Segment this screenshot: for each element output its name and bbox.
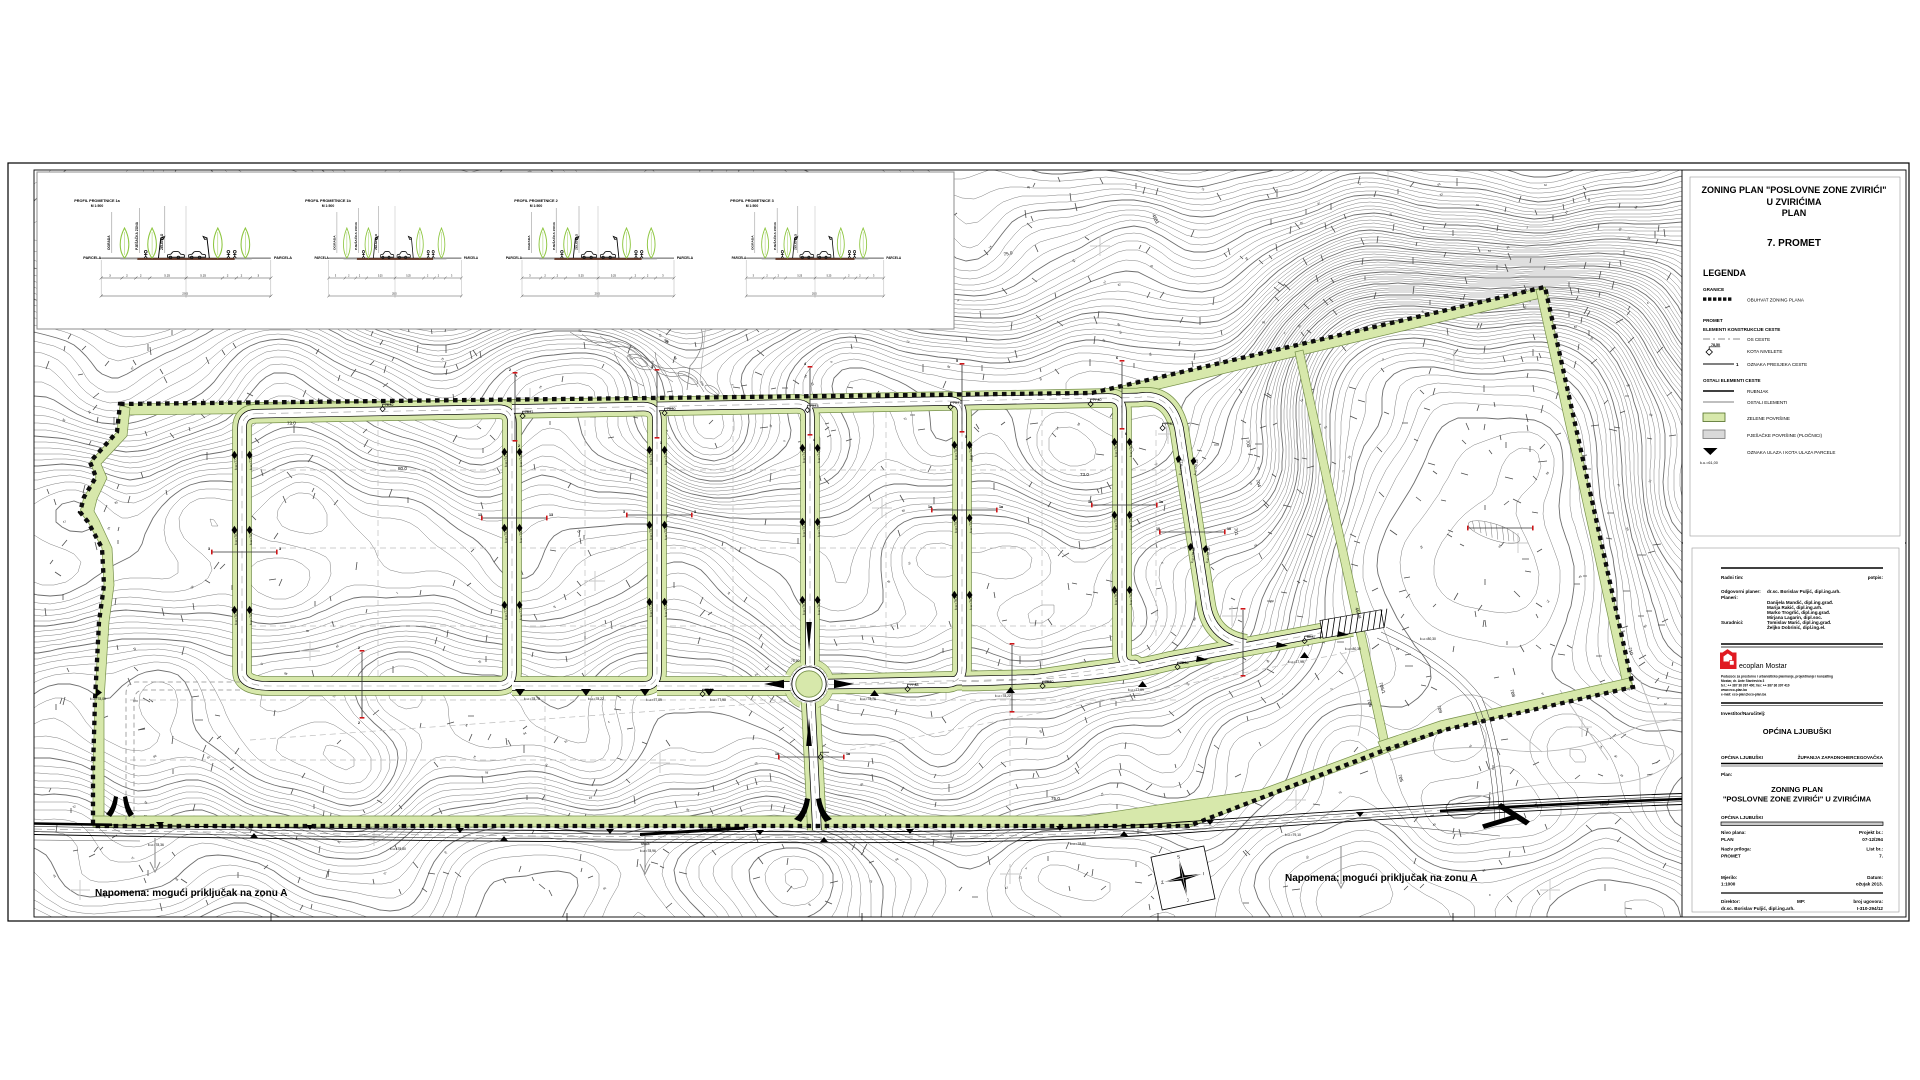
svg-text:I-310-294/12: I-310-294/12 bbox=[1857, 906, 1883, 911]
svg-text:4: 4 bbox=[804, 362, 806, 366]
svg-text:Napomena: mogući priključak na: Napomena: mogući priključak na zonu A bbox=[95, 888, 287, 899]
svg-text:PROMET: PROMET bbox=[1703, 318, 1723, 323]
svg-text:2: 2 bbox=[358, 721, 360, 725]
svg-text:k.u.=77,84: k.u.=77,84 bbox=[664, 601, 668, 617]
svg-text:k.u.=77,89: k.u.=77,89 bbox=[646, 698, 662, 702]
svg-text:3: 3 bbox=[694, 510, 696, 514]
svg-text:M 1:500: M 1:500 bbox=[530, 204, 543, 208]
svg-text:Nivo plana:: Nivo plana: bbox=[1721, 830, 1746, 835]
svg-text:k.u.=78,80: k.u.=78,80 bbox=[1070, 842, 1086, 846]
svg-text:OSTALI ELEMENTI: OSTALI ELEMENTI bbox=[1747, 400, 1787, 405]
svg-text:OZNAKA PRESJEKA CESTE: OZNAKA PRESJEKA CESTE bbox=[1747, 362, 1807, 367]
svg-text:3: 3 bbox=[623, 510, 625, 514]
svg-text:k.u.=78,76: k.u.=78,76 bbox=[860, 697, 876, 701]
svg-text:PROFIL PROMETNICE 3: PROFIL PROMETNICE 3 bbox=[730, 199, 773, 203]
svg-text:Plan:: Plan: bbox=[1721, 772, 1733, 777]
svg-text:5: 5 bbox=[965, 435, 967, 439]
svg-text:k.u.=74,10: k.u.=74,10 bbox=[802, 447, 806, 463]
svg-text:LEGENDA: LEGENDA bbox=[1703, 268, 1747, 278]
svg-text:k.u.=78,43: k.u.=78,43 bbox=[249, 529, 253, 545]
svg-text:Odgovorni planer:: Odgovorni planer: bbox=[1721, 589, 1761, 594]
svg-text:Investitor/Naručitelj:: Investitor/Naručitelj: bbox=[1721, 711, 1766, 716]
svg-text:k.u.=77,90: k.u.=77,90 bbox=[710, 698, 726, 702]
svg-text:k.u.=75,36: k.u.=75,36 bbox=[1114, 514, 1118, 530]
svg-text:77,60: 77,60 bbox=[1165, 422, 1174, 426]
svg-text:6: 6 bbox=[1116, 356, 1118, 360]
svg-text:1: 1 bbox=[1736, 362, 1739, 367]
svg-text:k.u.=76,10: k.u.=76,10 bbox=[954, 594, 958, 610]
svg-text:"POSLOVNE ZONE ZVIRIĆI" U ZVIR: "POSLOVNE ZONE ZVIRIĆI" U ZVIRIĆIMA bbox=[1723, 795, 1872, 804]
svg-text:k.u.=77,95: k.u.=77,95 bbox=[1288, 660, 1304, 664]
svg-text:k.u.=78,20: k.u.=78,20 bbox=[969, 444, 973, 460]
svg-text:dr.sc. Borislav Puljić, dipl.i: dr.sc. Borislav Puljić, dipl.ing.arh. bbox=[1721, 906, 1795, 911]
svg-text:1895: 1895 bbox=[1600, 803, 1608, 807]
svg-text:k.u.=79,10: k.u.=79,10 bbox=[1285, 833, 1301, 837]
svg-text:ZONING PLAN "POSLOVNE ZONE ZVI: ZONING PLAN "POSLOVNE ZONE ZVIRIĆI" bbox=[1701, 184, 1886, 195]
svg-text:k.u.=75,49: k.u.=75,49 bbox=[664, 524, 668, 540]
svg-text:M 1:500: M 1:500 bbox=[91, 204, 104, 208]
svg-text:k.u.=78,96: k.u.=78,96 bbox=[640, 849, 656, 853]
svg-text:78,92: 78,92 bbox=[385, 403, 394, 407]
svg-text:73,00: 73,00 bbox=[667, 407, 676, 411]
svg-text:k.u.=75,49: k.u.=75,49 bbox=[649, 524, 653, 540]
svg-text:k.u.=75,18: k.u.=75,18 bbox=[802, 521, 806, 537]
svg-text:k.u.=78,22: k.u.=78,22 bbox=[588, 697, 604, 701]
svg-text:k.u.=75,36: k.u.=75,36 bbox=[1129, 514, 1133, 530]
svg-text:10: 10 bbox=[1156, 527, 1160, 531]
svg-text:k.u.=77,89: k.u.=77,89 bbox=[1128, 688, 1144, 692]
svg-text:13: 13 bbox=[549, 513, 553, 517]
svg-text:Naziv priloga:: Naziv priloga: bbox=[1721, 847, 1752, 852]
svg-text:GRANICE: GRANICE bbox=[1703, 287, 1724, 292]
svg-text:77,80: 77,80 bbox=[1093, 398, 1102, 402]
svg-text:Poduzeće za prostorno i urbani: Poduzeće za prostorno i urbanističko pla… bbox=[1721, 675, 1833, 679]
svg-text:PROFIL PROMETNICE 2: PROFIL PROMETNICE 2 bbox=[514, 199, 557, 203]
svg-text:k.u.=78,00: k.u.=78,00 bbox=[90, 697, 106, 701]
svg-text:PROFIL PROMETNICE 1a: PROFIL PROMETNICE 1a bbox=[74, 199, 120, 203]
svg-text:ecoplan Mostar: ecoplan Mostar bbox=[1739, 663, 1788, 670]
svg-text:OBUHVAT ZONING PLANA: OBUHVAT ZONING PLANA bbox=[1747, 298, 1805, 303]
svg-text:2: 2 bbox=[358, 646, 360, 650]
svg-text:10: 10 bbox=[1227, 527, 1231, 531]
svg-text:7. PROMET: 7. PROMET bbox=[1767, 238, 1821, 249]
svg-text:k.u.=78,36: k.u.=78,36 bbox=[148, 843, 164, 847]
svg-text:k.u.=74,70: k.u.=74,70 bbox=[519, 451, 523, 467]
svg-text:7.: 7. bbox=[1879, 854, 1883, 859]
svg-text:k.u.=77,84: k.u.=77,84 bbox=[649, 601, 653, 617]
svg-text:PROMET: PROMET bbox=[1721, 854, 1741, 859]
svg-text:ZELENE POVRŠINE: ZELENE POVRŠINE bbox=[1747, 415, 1790, 421]
svg-text:3: 3 bbox=[279, 547, 281, 551]
svg-text:k.u.=76,10: k.u.=76,10 bbox=[1114, 589, 1118, 605]
svg-text:ožujak 2013.: ožujak 2013. bbox=[1856, 882, 1883, 887]
svg-text:k.u.=61,00: k.u.=61,00 bbox=[1700, 461, 1718, 465]
svg-text:Mjerilo:: Mjerilo: bbox=[1721, 875, 1738, 880]
svg-text:k.u.=77,84: k.u.=77,84 bbox=[504, 604, 508, 620]
svg-text:Datum:: Datum: bbox=[1867, 875, 1883, 880]
svg-text:Napomena: mogući priključak na: Napomena: mogući priključak na zonu A bbox=[1285, 873, 1477, 884]
svg-text:13: 13 bbox=[478, 513, 482, 517]
svg-text:4: 4 bbox=[813, 438, 815, 442]
svg-text:k.u.=76,86: k.u.=76,86 bbox=[802, 599, 806, 615]
svg-text:Suradnici:: Suradnici: bbox=[1721, 620, 1744, 625]
svg-text:e-mail: eco-plan@eco-plan.ba: e-mail: eco-plan@eco-plan.ba bbox=[1721, 693, 1766, 697]
svg-text:k.u.=75,02: k.u.=75,02 bbox=[504, 527, 508, 543]
svg-text:k.u.=76,23: k.u.=76,23 bbox=[1114, 441, 1118, 457]
svg-text:List br.:: List br.: bbox=[1866, 847, 1883, 852]
svg-text:k.u.=78,43: k.u.=78,43 bbox=[234, 529, 238, 545]
svg-text:Radni tim:: Radni tim: bbox=[1721, 575, 1744, 580]
svg-text:73,76: 73,76 bbox=[953, 401, 962, 405]
svg-text:k.u.=76,86: k.u.=76,86 bbox=[817, 599, 821, 615]
svg-text:dr.sc. Borislav Puljić, dipl.i: dr.sc. Borislav Puljić, dipl.ing.arh. bbox=[1767, 589, 1841, 594]
svg-text:78,50: 78,50 bbox=[1711, 343, 1720, 347]
svg-text:OPĆINA LJUBUŠKI: OPĆINA LJUBUŠKI bbox=[1721, 753, 1763, 760]
svg-text:75,20: 75,20 bbox=[791, 659, 800, 663]
svg-text:OZNAKA ULAZA I KOTA ULAZA PARC: OZNAKA ULAZA I KOTA ULAZA PARCELE bbox=[1747, 450, 1835, 455]
svg-text:KOTA NIVELETE: KOTA NIVELETE bbox=[1747, 349, 1782, 354]
svg-text:tel.: ++ 387 36 397 400; fax:: tel.: ++ 387 36 397 400; fax: ++ 387 36 … bbox=[1721, 684, 1790, 688]
svg-text:M 1:500: M 1:500 bbox=[322, 204, 335, 208]
svg-text:OSTALI ELEMENTI CESTE: OSTALI ELEMENTI CESTE bbox=[1703, 378, 1761, 383]
svg-text:OPĆINA LJUBUŠKI: OPĆINA LJUBUŠKI bbox=[1763, 727, 1831, 736]
svg-text:k.u.=74,10: k.u.=74,10 bbox=[817, 447, 821, 463]
svg-text:Željko Dobrinić, dipl.ing.el.: Željko Dobrinić, dipl.ing.el. bbox=[1767, 623, 1825, 630]
svg-text:77,88: 77,88 bbox=[910, 683, 919, 687]
svg-text:ZONING PLAN: ZONING PLAN bbox=[1771, 785, 1823, 794]
svg-text:k.u.=78,22: k.u.=78,22 bbox=[995, 694, 1011, 698]
svg-text:ŽUPANIJA ZAPADNOHERCEGOVAČKA: ŽUPANIJA ZAPADNOHERCEGOVAČKA bbox=[1798, 753, 1884, 760]
svg-text:78,20: 78,20 bbox=[1045, 680, 1054, 684]
svg-text:k.u.=78,20: k.u.=78,20 bbox=[954, 444, 958, 460]
svg-text:k.u.=75,18: k.u.=75,18 bbox=[817, 521, 821, 537]
svg-text:k.u.=78,80: k.u.=78,80 bbox=[390, 847, 406, 851]
svg-text:k.u.=80,30: k.u.=80,30 bbox=[1345, 647, 1361, 651]
svg-text:PLAN: PLAN bbox=[1782, 208, 1807, 218]
svg-text:2: 2 bbox=[518, 444, 520, 448]
svg-text:Ljubuški - cesta - Međugorje: Ljubuški - cesta - Međugorje bbox=[700, 826, 745, 830]
svg-text:Planeri:: Planeri: bbox=[1721, 595, 1738, 600]
svg-text:k.u.=78,78: k.u.=78,78 bbox=[524, 697, 540, 701]
svg-text:k.u.=80,30: k.u.=80,30 bbox=[1420, 637, 1436, 641]
svg-text:78,78: 78,78 bbox=[705, 688, 714, 692]
svg-text:78,71: 78,71 bbox=[525, 410, 534, 414]
svg-text:PROFIL PROMETNICE 1b: PROFIL PROMETNICE 1b bbox=[305, 199, 351, 203]
svg-text:ELEMENTI KONSTRUKCIJE CESTE: ELEMENTI KONSTRUKCIJE CESTE bbox=[1703, 327, 1780, 332]
svg-text:PJEŠAČKE POVRŠINE (PLOČNICI): PJEŠAČKE POVRŠINE (PLOČNICI) bbox=[1747, 432, 1823, 438]
svg-text:RUBNJAK: RUBNJAK bbox=[1747, 389, 1769, 394]
svg-text:90: 90 bbox=[306, 629, 310, 633]
svg-text:k.u.=75,36: k.u.=75,36 bbox=[954, 517, 958, 533]
svg-text:73,78: 73,78 bbox=[810, 404, 819, 408]
svg-text:k.u.=74,70: k.u.=74,70 bbox=[504, 451, 508, 467]
svg-text:2: 2 bbox=[509, 368, 511, 372]
svg-text:k.u.=77,43: k.u.=77,43 bbox=[249, 454, 253, 470]
svg-text:6: 6 bbox=[1125, 432, 1127, 436]
svg-text:U ZVIRIĆIMA: U ZVIRIĆIMA bbox=[1767, 196, 1822, 207]
svg-text:k.u.=75,02: k.u.=75,02 bbox=[519, 527, 523, 543]
svg-text:1:1000: 1:1000 bbox=[1721, 882, 1736, 887]
svg-text:k.u.=77,84: k.u.=77,84 bbox=[519, 604, 523, 620]
svg-text:80.0: 80.0 bbox=[398, 466, 407, 471]
svg-text:MP:: MP: bbox=[1797, 899, 1806, 904]
svg-text:k.u.=78,93: k.u.=78,93 bbox=[249, 609, 253, 625]
svg-text:broj ugovora:: broj ugovora: bbox=[1853, 899, 1883, 904]
svg-text:1895: 1895 bbox=[640, 841, 650, 846]
svg-text:75.0: 75.0 bbox=[1051, 796, 1060, 801]
svg-text:PLAN: PLAN bbox=[1721, 837, 1734, 842]
svg-text:3: 3 bbox=[660, 441, 662, 445]
svg-text:73.0: 73.0 bbox=[1080, 472, 1089, 477]
svg-text:59: 59 bbox=[1476, 203, 1480, 207]
svg-text:k.u.=75,36: k.u.=75,36 bbox=[969, 517, 973, 533]
svg-text:k.u.=74,76: k.u.=74,76 bbox=[649, 449, 653, 465]
svg-text:k.u.=74,76: k.u.=74,76 bbox=[664, 449, 668, 465]
svg-text:Direktor:: Direktor: bbox=[1721, 899, 1741, 904]
svg-text:k.u.=76,10: k.u.=76,10 bbox=[969, 594, 973, 610]
svg-text:80,47: 80,47 bbox=[1307, 635, 1316, 639]
svg-text:07-12/294: 07-12/294 bbox=[1862, 837, 1883, 842]
svg-text:Projekt br.:: Projekt br.: bbox=[1859, 830, 1883, 835]
svg-text:3: 3 bbox=[651, 365, 653, 369]
svg-text:k.u.=77,43: k.u.=77,43 bbox=[234, 454, 238, 470]
svg-text:www.eco-plan.ba: www.eco-plan.ba bbox=[1720, 688, 1747, 692]
svg-text:78,86: 78,86 bbox=[1180, 661, 1189, 665]
svg-text:3: 3 bbox=[208, 547, 210, 551]
svg-text:73.0: 73.0 bbox=[287, 421, 297, 426]
svg-text:M 1:500: M 1:500 bbox=[746, 204, 759, 208]
svg-text:k.u.=76,23: k.u.=76,23 bbox=[1129, 441, 1133, 457]
svg-text:k.u.=76,10: k.u.=76,10 bbox=[1129, 589, 1133, 605]
svg-text:5: 5 bbox=[956, 359, 958, 363]
svg-text:k.u.=78,93: k.u.=78,93 bbox=[234, 609, 238, 625]
svg-text:OPĆINA LJUBUŠKI: OPĆINA LJUBUŠKI bbox=[1721, 813, 1763, 820]
svg-text:potpis:: potpis: bbox=[1868, 575, 1884, 580]
svg-text:OS CESTE: OS CESTE bbox=[1747, 337, 1770, 342]
svg-text:Mostar, dr. Ante Starčevića 3: Mostar, dr. Ante Starčevića 3 bbox=[1721, 679, 1765, 683]
